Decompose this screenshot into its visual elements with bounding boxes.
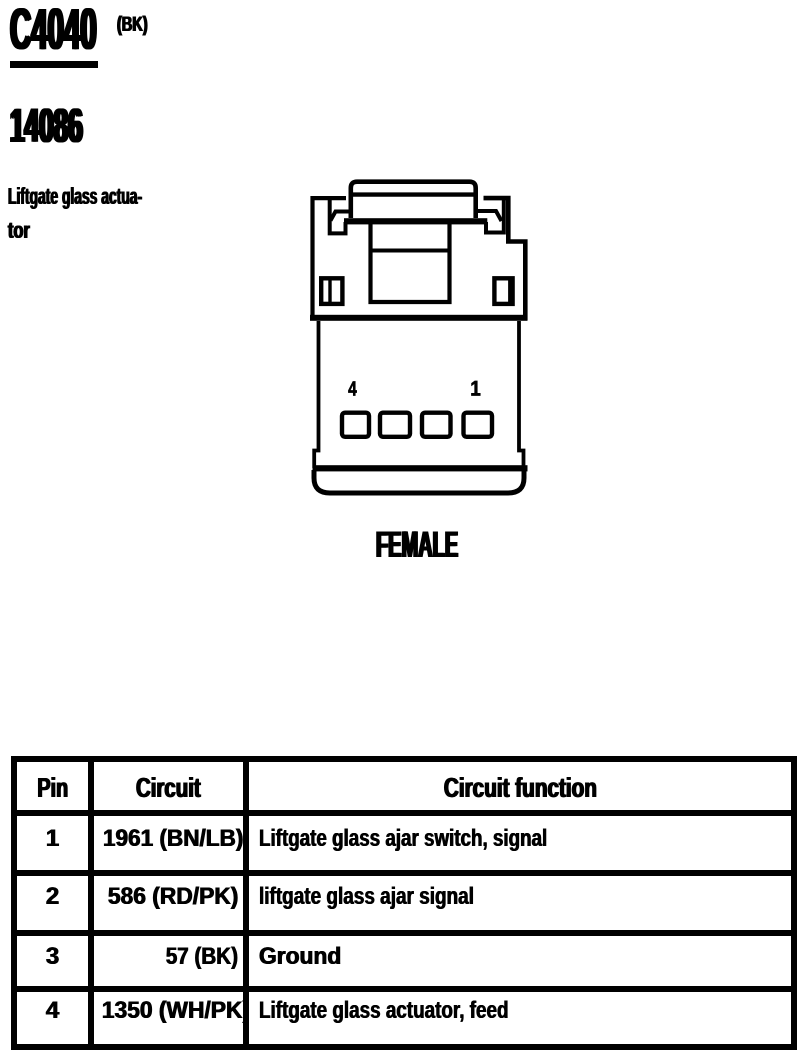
svg-text:4: 4 — [348, 378, 357, 400]
svg-text:1: 1 — [470, 378, 481, 401]
